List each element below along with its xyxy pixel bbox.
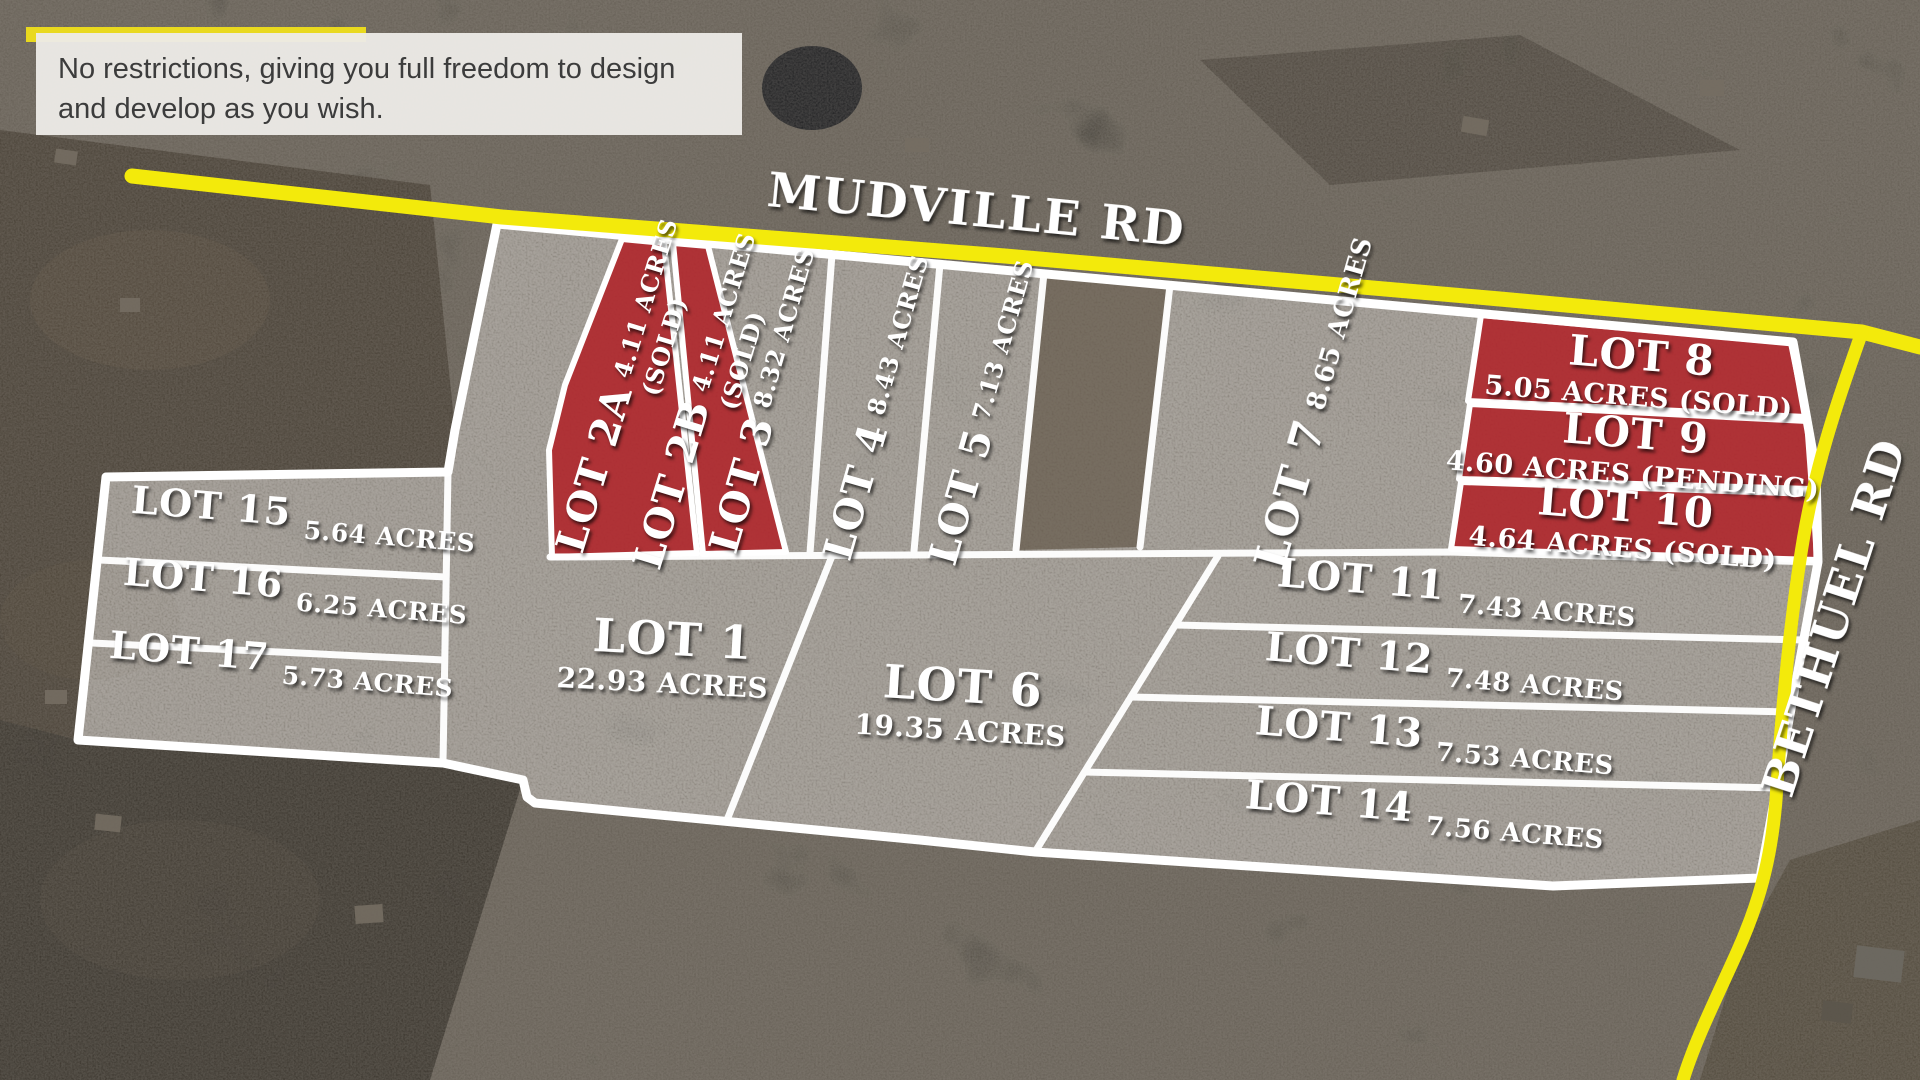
lot-map-image: MUDVILLE RD BETHUEL RD LOT 1 22.93 ACRES… <box>0 0 1920 1080</box>
lot-1-name: LOT 1 <box>592 608 754 670</box>
caption-line-1: No restrictions, giving you full freedom… <box>58 53 675 85</box>
lot-6-name: LOT 6 <box>882 654 1045 718</box>
caption-box: No restrictions, giving you full freedom… <box>26 27 742 135</box>
label-lot-6: LOT 6 19.35 ACRES <box>854 653 1071 754</box>
caption-line-2: and develop as you wish. <box>58 93 384 125</box>
